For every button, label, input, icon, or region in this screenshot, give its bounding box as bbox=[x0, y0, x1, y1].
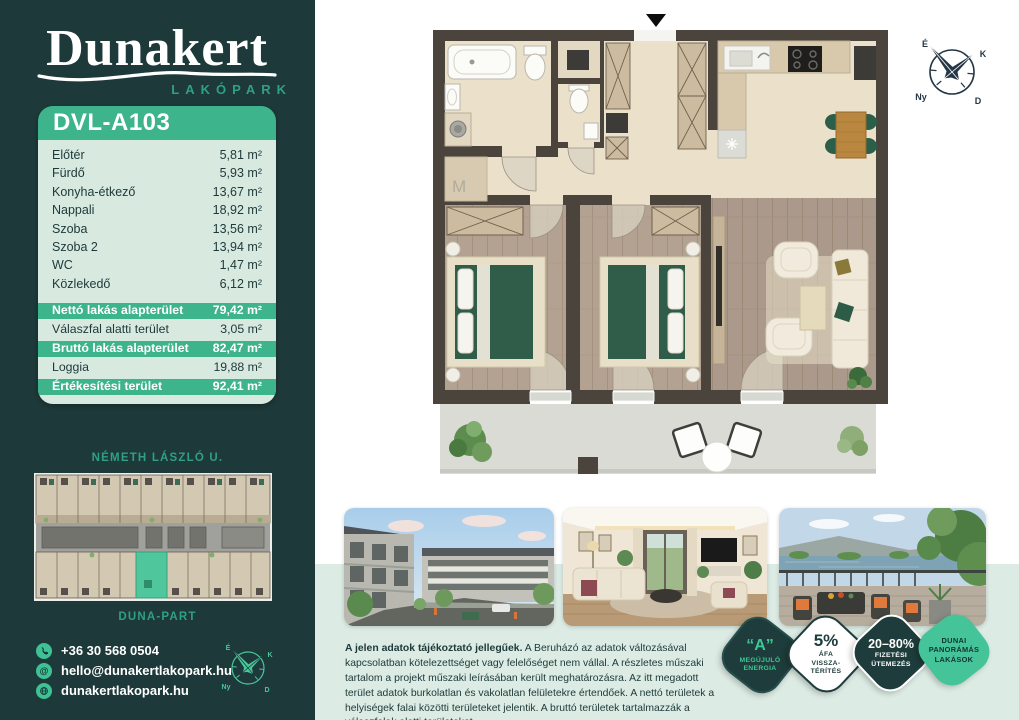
street-label-top: NÉMETH LÁSZLÓ U. bbox=[0, 452, 315, 464]
contact-email[interactable]: @ hello@dunakertlakopark.hu bbox=[36, 663, 232, 679]
svg-text:Ny: Ny bbox=[915, 92, 927, 102]
room-label: Előtér bbox=[52, 146, 85, 164]
summary-row-loggia: Loggia19,88 m² bbox=[38, 360, 276, 376]
brand-logo: Dunakert LAKÓPARK bbox=[18, 22, 296, 97]
room-value: 13,67 m² bbox=[213, 183, 262, 201]
room-value: 6,12 m² bbox=[220, 275, 262, 293]
summary-row-valaszfal: Válaszfal alatti terület3,05 m² bbox=[38, 322, 276, 338]
entrance-arrow-icon bbox=[646, 14, 666, 27]
svg-text:Ny: Ny bbox=[222, 684, 231, 691]
compass-rose-main: É K D Ny bbox=[906, 26, 998, 118]
svg-text:K: K bbox=[980, 49, 987, 59]
table-row: Közlekedő6,12 m² bbox=[38, 275, 276, 293]
street-label-bottom: DUNA-PART bbox=[0, 611, 315, 623]
room-label: Szoba bbox=[52, 220, 87, 238]
sidebar: Dunakert LAKÓPARK DVL-A103 Előtér5,81 m²… bbox=[0, 0, 315, 720]
brand-subtitle: LAKÓPARK bbox=[18, 82, 296, 97]
disclaimer-bold: A jelen adatok tájékoztató jellegűek. bbox=[345, 643, 522, 654]
summary-row-brutto: Bruttó lakás alapterület82,47 m² bbox=[38, 341, 276, 357]
table-row: Konyha-étkező13,67 m² bbox=[38, 183, 276, 201]
summary-row-netto: Nettó lakás alapterület79,42 m² bbox=[38, 303, 276, 319]
room-value: 18,92 m² bbox=[213, 201, 262, 219]
disclaimer-text: A jelen adatok tájékoztató jellegűek. A … bbox=[345, 642, 727, 720]
table-row: Szoba13,56 m² bbox=[38, 220, 276, 238]
room-label: Szoba 2 bbox=[52, 238, 98, 256]
svg-text:D: D bbox=[264, 687, 269, 694]
globe-icon bbox=[36, 683, 52, 699]
room-label: Konyha-étkező bbox=[52, 183, 135, 201]
svg-text:K: K bbox=[267, 652, 272, 659]
room-label: Fürdő bbox=[52, 164, 85, 182]
brand-name: Dunakert bbox=[18, 22, 296, 76]
svg-text:É: É bbox=[226, 643, 231, 652]
room-value: 5,81 m² bbox=[220, 146, 262, 164]
contact-phone-text: +36 30 568 0504 bbox=[61, 643, 159, 658]
contact-block: +36 30 568 0504 @ hello@dunakertlakopark… bbox=[36, 643, 232, 699]
table-row: Fürdő5,93 m² bbox=[38, 164, 276, 182]
room-label: Nappali bbox=[52, 201, 94, 219]
unit-summary: Nettó lakás alapterület79,42 m² Válaszfa… bbox=[38, 303, 276, 395]
unit-id: DVL-A103 bbox=[38, 106, 276, 140]
svg-text:D: D bbox=[975, 96, 982, 106]
table-row: Szoba 213,94 m² bbox=[38, 238, 276, 256]
room-value: 5,93 m² bbox=[220, 164, 262, 182]
floor-plan: M bbox=[428, 10, 888, 478]
photo-exterior bbox=[344, 508, 554, 626]
contact-website[interactable]: dunakertlakopark.hu bbox=[36, 683, 232, 699]
contact-email-text: hello@dunakertlakopark.hu bbox=[61, 663, 232, 678]
unit-room-table: Előtér5,81 m² Fürdő5,93 m² Konyha-étkező… bbox=[38, 140, 276, 404]
room-label: WC bbox=[52, 256, 73, 274]
badge-danube-panorama: DUNAI PANORÁMÁS LAKÁSOK bbox=[910, 606, 997, 693]
summary-row-ertekesitesi: Értékesítési terület92,41 m² bbox=[38, 379, 276, 395]
photo-terrace-view bbox=[779, 508, 986, 626]
site-plan bbox=[32, 470, 274, 604]
contact-phone[interactable]: +36 30 568 0504 bbox=[36, 643, 232, 659]
table-row: Előtér5,81 m² bbox=[38, 146, 276, 164]
apartment-datasheet: Dunakert LAKÓPARK DVL-A103 Előtér5,81 m²… bbox=[0, 0, 1019, 720]
table-row: WC1,47 m² bbox=[38, 256, 276, 274]
loggia-floor bbox=[440, 404, 876, 474]
compass-rose-sidebar: É K D Ny bbox=[216, 636, 280, 700]
table-row: Nappali18,92 m² bbox=[38, 201, 276, 219]
contact-website-text: dunakertlakopark.hu bbox=[61, 683, 189, 698]
room-value: 1,47 m² bbox=[220, 256, 262, 274]
highlighted-unit bbox=[136, 552, 167, 598]
room-label: Közlekedő bbox=[52, 275, 110, 293]
room-value: 13,94 m² bbox=[213, 238, 262, 256]
unit-card: DVL-A103 Előtér5,81 m² Fürdő5,93 m² Kony… bbox=[38, 106, 276, 404]
washer-label: M bbox=[452, 177, 466, 196]
room-value: 13,56 m² bbox=[213, 220, 262, 238]
dining-table bbox=[836, 112, 866, 158]
phone-icon bbox=[36, 643, 52, 659]
photo-interior-living bbox=[563, 508, 767, 626]
svg-text:É: É bbox=[922, 39, 928, 49]
at-icon: @ bbox=[36, 663, 52, 679]
